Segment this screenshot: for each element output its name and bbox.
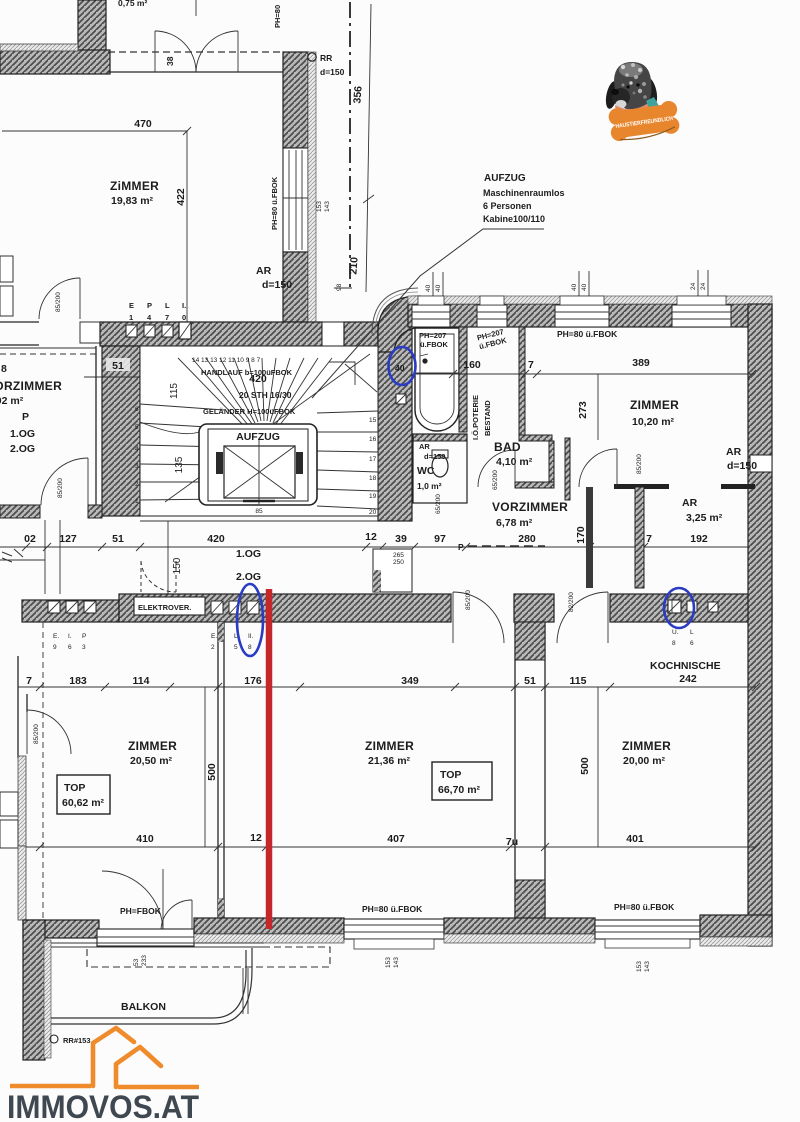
- svg-text:114: 114: [133, 675, 150, 687]
- svg-text:3,25 m²: 3,25 m²: [686, 512, 723, 524]
- svg-text:d=150: d=150: [320, 67, 345, 77]
- svg-text:7: 7: [646, 533, 652, 545]
- svg-text:16: 16: [369, 436, 377, 443]
- svg-text:AR: AR: [682, 497, 698, 509]
- svg-text:153: 153: [316, 201, 323, 212]
- svg-text:60,62 m²: 60,62 m²: [62, 797, 105, 809]
- svg-text:127: 127: [59, 533, 77, 545]
- svg-text:P: P: [82, 633, 86, 640]
- svg-text:RR#153: RR#153: [63, 1036, 91, 1045]
- svg-text:I.: I.: [68, 633, 72, 640]
- svg-text:420: 420: [207, 533, 225, 545]
- svg-text:470: 470: [134, 118, 152, 130]
- svg-text:233: 233: [141, 955, 148, 966]
- svg-text:GELÄNDER H=100üFBOK: GELÄNDER H=100üFBOK: [203, 407, 296, 416]
- svg-text:VORZIMMER: VORZIMMER: [492, 500, 568, 514]
- svg-text:21,36 m²: 21,36 m²: [368, 755, 411, 767]
- svg-text:ZiMMER: ZiMMER: [110, 179, 159, 193]
- svg-text:RR: RR: [320, 53, 332, 63]
- svg-text:500: 500: [206, 763, 218, 781]
- svg-text:P: P: [147, 301, 152, 310]
- svg-text:3: 3: [135, 463, 139, 470]
- svg-text:6,78 m²: 6,78 m²: [496, 517, 533, 529]
- svg-text:PH=207: PH=207: [419, 331, 446, 340]
- svg-text:7: 7: [165, 313, 169, 322]
- svg-text:I.Ö.POTERIE: I.Ö.POTERIE: [471, 395, 480, 440]
- svg-text:410: 410: [136, 833, 154, 845]
- svg-text:24: 24: [700, 282, 707, 290]
- svg-text:0,75 m²: 0,75 m²: [118, 0, 147, 8]
- svg-text:407: 407: [387, 833, 405, 845]
- svg-text:TOP: TOP: [64, 782, 85, 794]
- svg-text:8: 8: [248, 644, 252, 651]
- svg-text:5: 5: [234, 644, 238, 651]
- svg-text:420: 420: [249, 373, 267, 385]
- svg-text:Kabine100/110: Kabine100/110: [483, 214, 545, 224]
- svg-text:BESTAND: BESTAND: [483, 400, 492, 436]
- svg-text:24: 24: [690, 282, 697, 290]
- svg-text:ZIMMER: ZIMMER: [622, 739, 671, 753]
- svg-text:3: 3: [82, 644, 86, 651]
- svg-text:KOCHNISCHE: KOCHNISCHE: [650, 660, 721, 672]
- svg-text:65/200: 65/200: [492, 470, 499, 490]
- svg-text:51: 51: [112, 533, 124, 545]
- svg-text:143: 143: [393, 957, 400, 968]
- svg-text:85/200: 85/200: [636, 454, 643, 474]
- svg-text:L: L: [165, 301, 170, 310]
- svg-text:Maschinenraumlos: Maschinenraumlos: [483, 188, 565, 198]
- svg-text:1: 1: [135, 498, 139, 505]
- svg-text:7: 7: [26, 675, 32, 687]
- svg-text:ü.FBOK: ü.FBOK: [420, 340, 448, 349]
- svg-text:280: 280: [518, 533, 536, 545]
- svg-text:356: 356: [351, 85, 364, 103]
- svg-text:14 13 13 12 11 10 9 8 7: 14 13 13 12 11 10 9 8 7: [192, 357, 261, 364]
- svg-text:183: 183: [69, 675, 87, 687]
- svg-text:8: 8: [1, 363, 7, 375]
- svg-text:d=150: d=150: [262, 279, 292, 291]
- svg-text:500: 500: [579, 757, 591, 775]
- svg-text:AR: AR: [419, 442, 430, 451]
- svg-text:98: 98: [336, 283, 343, 291]
- svg-text:85/200: 85/200: [55, 292, 62, 312]
- svg-text:19,83 m²: 19,83 m²: [111, 195, 154, 207]
- svg-text:PH=80 ü.FBOK: PH=80 ü.FBOK: [557, 329, 618, 339]
- svg-text:0: 0: [182, 313, 186, 322]
- svg-text:ELEKTROVER.: ELEKTROVER.: [138, 603, 191, 612]
- svg-text:6: 6: [135, 406, 139, 413]
- svg-text:PH=80 ü.FBOK: PH=80 ü.FBOK: [614, 902, 675, 912]
- svg-text:40: 40: [435, 284, 442, 292]
- svg-text:160: 160: [463, 359, 481, 371]
- svg-text:250: 250: [393, 559, 404, 566]
- svg-text:ZIMMER: ZIMMER: [128, 739, 177, 753]
- svg-text:115: 115: [570, 675, 587, 687]
- svg-text:273: 273: [577, 401, 589, 419]
- svg-text:VORZIMMER: VORZIMMER: [0, 379, 62, 393]
- svg-text:2.OG: 2.OG: [10, 443, 35, 455]
- svg-text:1,0 m²: 1,0 m²: [417, 481, 442, 491]
- svg-text:U.: U.: [672, 629, 679, 636]
- svg-text:19: 19: [369, 493, 377, 500]
- svg-text:53: 53: [133, 958, 140, 966]
- svg-text:176: 176: [244, 675, 262, 687]
- svg-text:E: E: [129, 301, 134, 310]
- svg-text:85/200: 85/200: [57, 478, 64, 498]
- svg-text:66,70 m²: 66,70 m²: [438, 784, 481, 796]
- svg-text:192: 192: [690, 533, 708, 545]
- svg-text:4,10 m²: 4,10 m²: [496, 456, 533, 468]
- svg-text:85/200: 85/200: [33, 724, 40, 744]
- svg-text:ZIMMER: ZIMMER: [365, 739, 414, 753]
- svg-text:85: 85: [255, 508, 263, 515]
- svg-text:HANDLAUF b=100üFBOK: HANDLAUF b=100üFBOK: [201, 368, 293, 377]
- svg-text:10,20 m²: 10,20 m²: [632, 416, 675, 428]
- svg-text:17: 17: [369, 456, 377, 463]
- svg-text:1: 1: [129, 313, 133, 322]
- svg-text:9,02 m²: 9,02 m²: [0, 395, 24, 407]
- svg-text:P: P: [22, 411, 29, 423]
- svg-text:P: P: [458, 542, 464, 552]
- svg-text:4: 4: [135, 446, 139, 453]
- svg-text:d=150: d=150: [727, 460, 757, 472]
- svg-text:97: 97: [434, 533, 446, 545]
- svg-text:2.OG: 2.OG: [236, 571, 261, 583]
- svg-text:d=150: d=150: [424, 452, 445, 461]
- svg-text:210: 210: [347, 256, 360, 274]
- svg-text:2: 2: [135, 481, 139, 488]
- svg-text:2: 2: [211, 644, 215, 651]
- svg-text:20,00 m²: 20,00 m²: [623, 755, 666, 767]
- svg-text:IMMOVOS.AT: IMMOVOS.AT: [7, 1089, 199, 1122]
- svg-text:7u: 7u: [506, 836, 518, 848]
- svg-text:02: 02: [24, 533, 36, 545]
- svg-text:170: 170: [575, 526, 587, 544]
- svg-text:15: 15: [369, 417, 377, 424]
- svg-text:38: 38: [165, 56, 175, 66]
- svg-text:153: 153: [385, 957, 392, 968]
- svg-text:40: 40: [425, 284, 432, 292]
- svg-text:51: 51: [524, 675, 536, 687]
- svg-text:40: 40: [395, 363, 405, 373]
- svg-text:6: 6: [68, 644, 72, 651]
- svg-text:51: 51: [112, 360, 124, 372]
- svg-text:115: 115: [169, 383, 180, 399]
- svg-text:20 STH 16/30: 20 STH 16/30: [239, 390, 292, 400]
- svg-text:ZIMMER: ZIMMER: [630, 398, 679, 412]
- svg-text:1.OG: 1.OG: [236, 548, 261, 560]
- svg-text:20,50 m²: 20,50 m²: [130, 755, 173, 767]
- svg-text:AR: AR: [726, 446, 742, 458]
- svg-text:5: 5: [135, 424, 139, 431]
- svg-text:82/200: 82/200: [568, 592, 575, 612]
- svg-text:349: 349: [401, 675, 419, 687]
- svg-text:150: 150: [172, 557, 183, 574]
- svg-text:65/200: 65/200: [435, 494, 442, 514]
- svg-text:I.: I.: [182, 301, 186, 310]
- svg-text:E.: E.: [211, 633, 217, 640]
- svg-text:PH=80: PH=80: [273, 5, 282, 28]
- svg-text:40: 40: [571, 283, 578, 291]
- svg-text:153: 153: [636, 961, 643, 972]
- svg-text:AR: AR: [256, 265, 272, 277]
- svg-text:7: 7: [528, 359, 534, 371]
- svg-text:1.OG: 1.OG: [10, 428, 35, 440]
- svg-text:AUFZUG: AUFZUG: [236, 431, 280, 443]
- svg-text:BALKON: BALKON: [121, 1001, 166, 1013]
- svg-text:143: 143: [644, 961, 651, 972]
- svg-text:85/200: 85/200: [465, 590, 472, 610]
- svg-text:AUFZUG: AUFZUG: [484, 173, 526, 184]
- svg-text:40: 40: [581, 283, 588, 291]
- svg-text:143: 143: [324, 201, 331, 212]
- svg-text:265: 265: [393, 552, 404, 559]
- svg-text:9: 9: [53, 644, 57, 651]
- svg-text:TOP: TOP: [440, 769, 461, 781]
- svg-text:422: 422: [175, 188, 187, 206]
- svg-text:6: 6: [690, 640, 694, 647]
- svg-text:PH=FBOK: PH=FBOK: [120, 906, 162, 916]
- svg-text:6 Personen: 6 Personen: [483, 201, 532, 211]
- svg-text:12: 12: [365, 531, 377, 543]
- svg-text:18: 18: [369, 475, 377, 482]
- svg-text:389: 389: [632, 357, 650, 369]
- svg-text:II.: II.: [248, 633, 254, 640]
- svg-text:12: 12: [250, 832, 262, 844]
- svg-text:E.: E.: [53, 633, 59, 640]
- svg-text:20: 20: [369, 509, 377, 516]
- svg-text:39: 39: [395, 533, 407, 545]
- svg-text:PH=80 ü.FBOK: PH=80 ü.FBOK: [362, 904, 423, 914]
- svg-text:242: 242: [679, 673, 697, 685]
- svg-text:BAD: BAD: [494, 440, 521, 454]
- svg-text:401: 401: [626, 833, 644, 845]
- svg-text:L: L: [690, 629, 694, 636]
- svg-text:PH=80 ü.FBOK: PH=80 ü.FBOK: [270, 176, 279, 230]
- svg-text:8: 8: [672, 640, 676, 647]
